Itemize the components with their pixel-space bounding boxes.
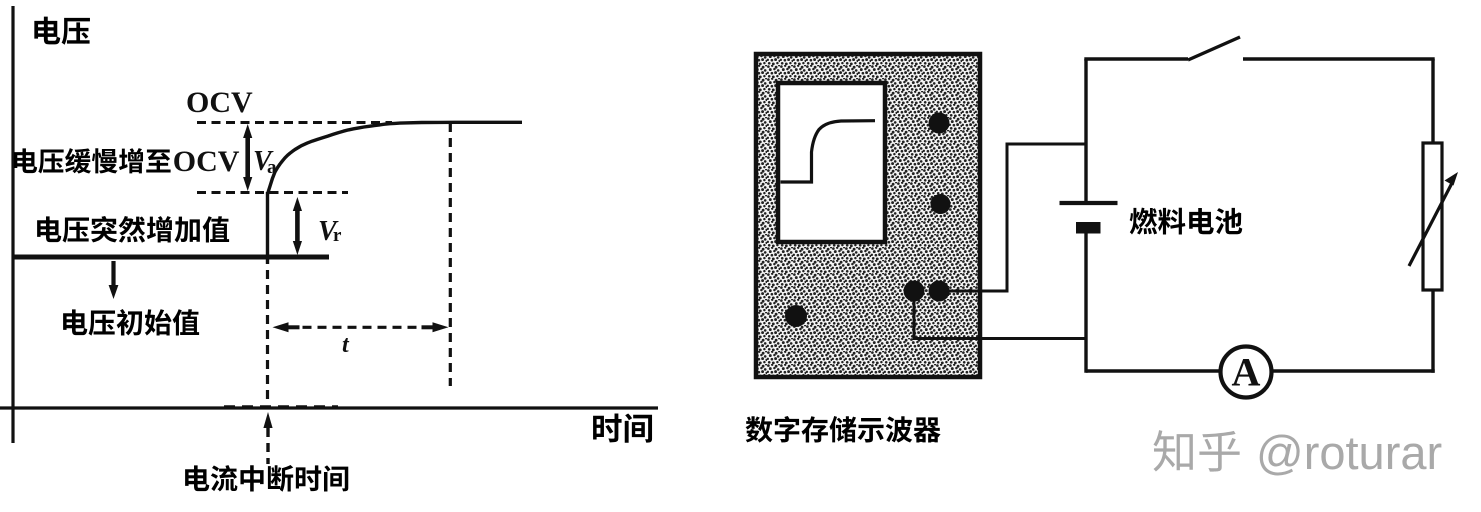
svg-text:a: a (267, 157, 277, 178)
svg-text:OCV: OCV (173, 145, 240, 178)
svg-text:@roturar: @roturar (1256, 426, 1442, 479)
svg-text:r: r (333, 225, 342, 246)
svg-text:OCV: OCV (186, 86, 253, 119)
svg-text:A: A (1232, 350, 1261, 395)
svg-text:t: t (342, 332, 350, 358)
